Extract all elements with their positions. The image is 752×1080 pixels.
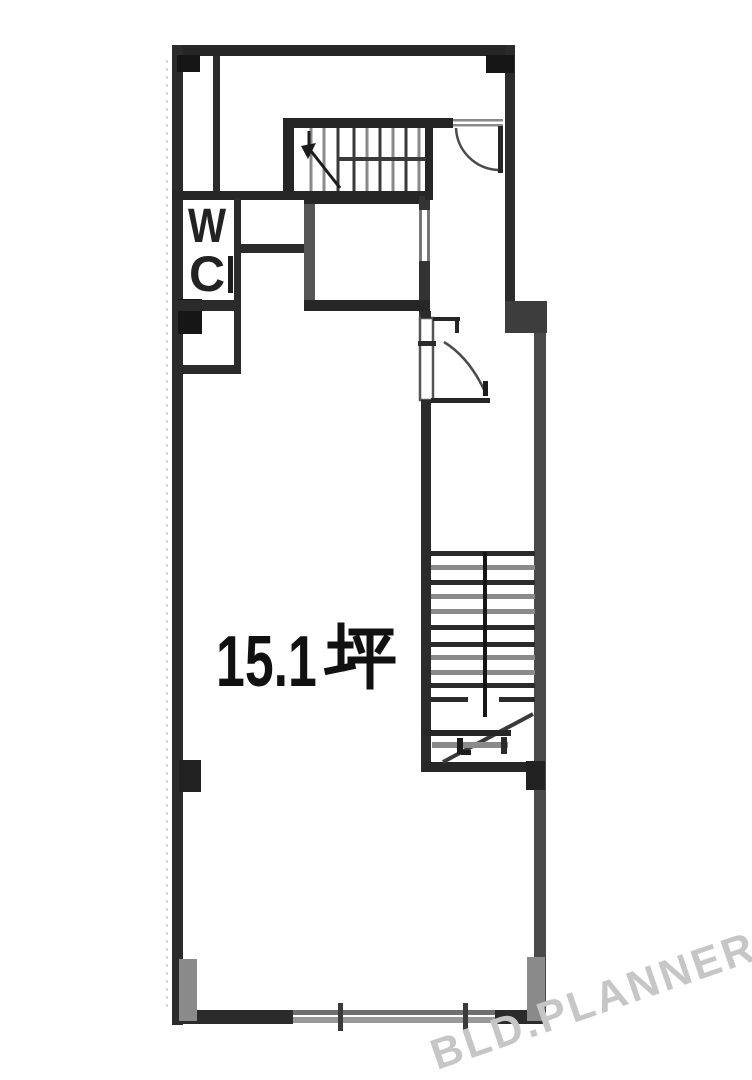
svg-text:W: W <box>188 200 226 253</box>
svg-text:C: C <box>189 246 225 302</box>
svg-text:15.1: 15.1 <box>216 622 317 702</box>
